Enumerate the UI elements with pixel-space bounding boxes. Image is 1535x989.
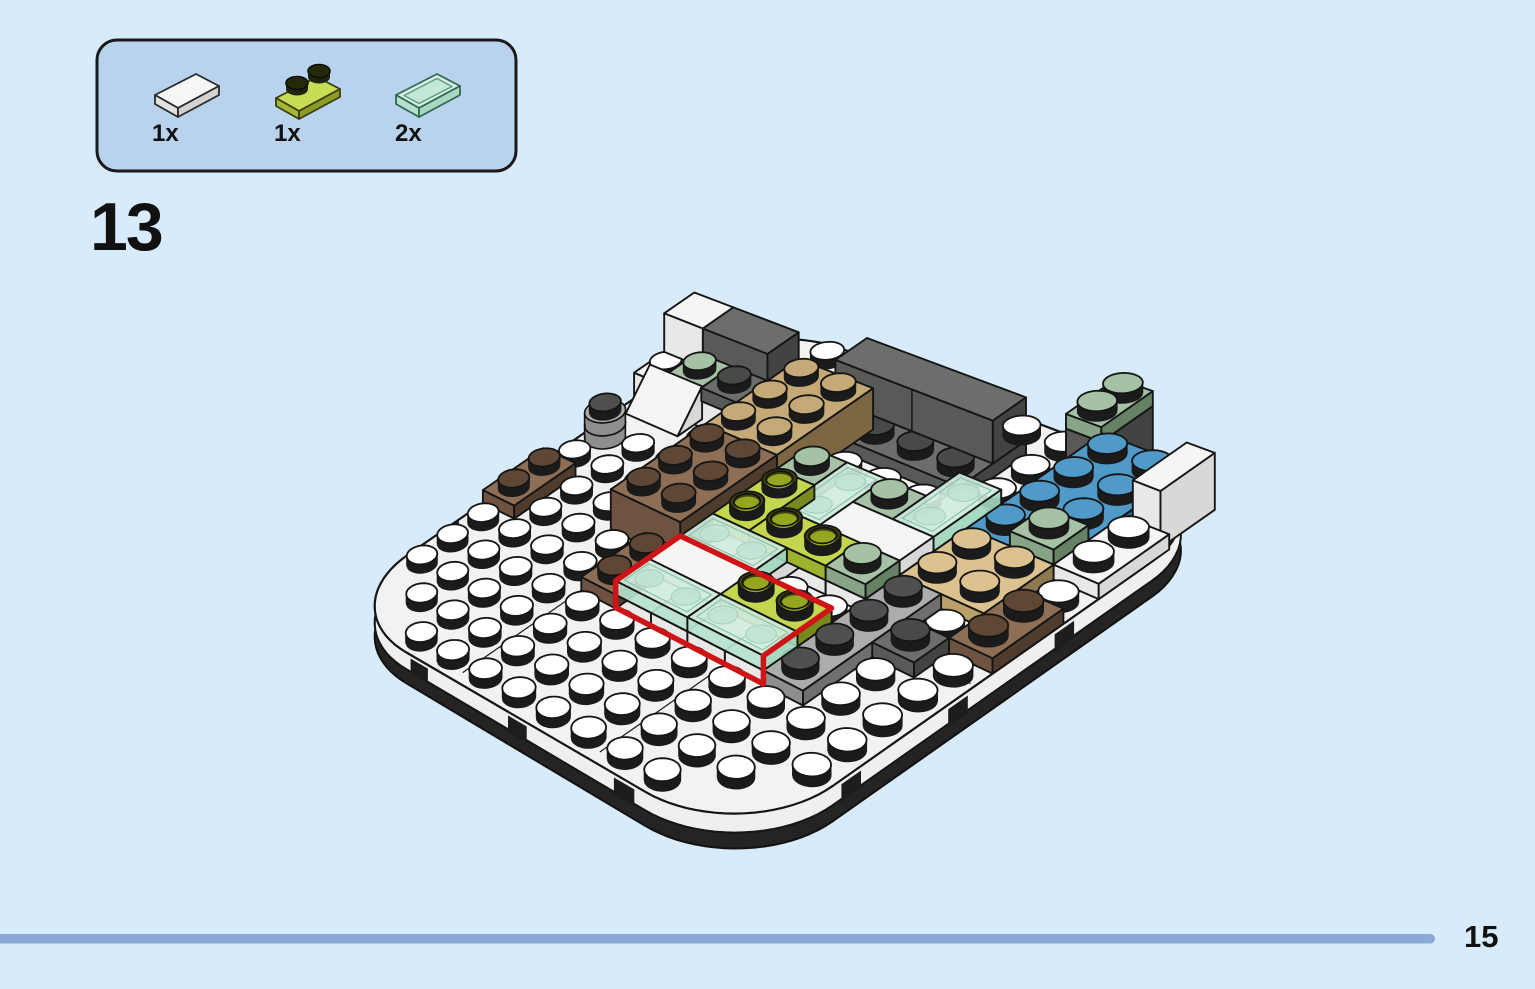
svg-text:2x: 2x	[395, 120, 422, 147]
svg-text:1x: 1x	[152, 120, 179, 147]
svg-text:15: 15	[1464, 919, 1498, 954]
svg-text:13: 13	[90, 189, 162, 265]
svg-text:1x: 1x	[274, 120, 301, 147]
